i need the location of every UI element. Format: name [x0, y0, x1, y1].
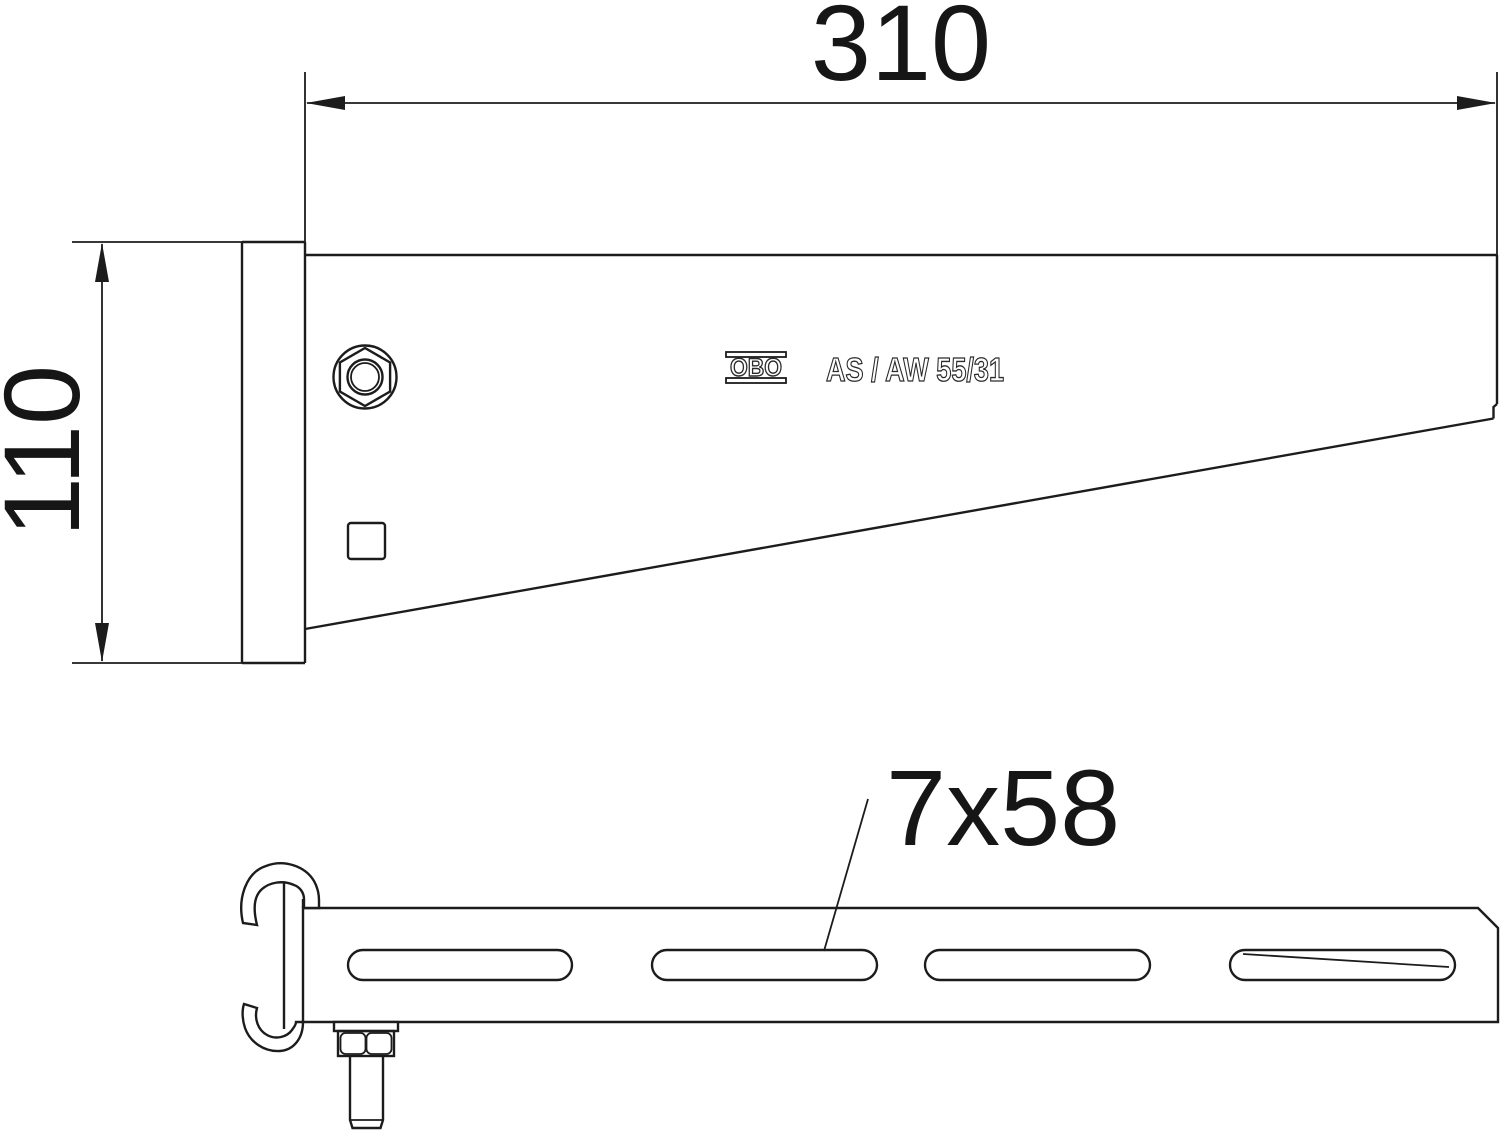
width-dim-label: 310	[811, 0, 991, 103]
height-dim-arrow-up-icon	[95, 243, 109, 282]
width-dimension: 310	[305, 0, 1497, 255]
bolt-shank	[350, 1056, 383, 1128]
arm-profile	[305, 255, 1497, 629]
height-dim-arrow-down-icon	[95, 623, 109, 662]
brand-logo: OBO	[726, 352, 786, 383]
hook-bottom-curl	[243, 1004, 303, 1051]
bolt-nut-face-right	[367, 1033, 392, 1054]
brand-logo-text: OBO	[730, 354, 782, 382]
bolt-washer	[334, 1022, 398, 1031]
square-hole	[348, 523, 385, 559]
height-dimension: 110	[0, 242, 305, 663]
slot-size-label: 7x58	[886, 747, 1120, 868]
width-dim-arrow-left-icon	[306, 96, 345, 110]
height-dim-label: 110	[0, 365, 102, 537]
product-marking-label: AS / AW 55/31	[826, 351, 1004, 388]
bolt-hole-outer-circle	[348, 360, 383, 395]
hex-bolt-head	[334, 346, 397, 409]
width-dim-arrow-right-icon	[1457, 96, 1496, 110]
arm-tip-step	[1494, 404, 1498, 419]
wall-plate	[242, 242, 305, 663]
bottom-view: 7x58	[241, 747, 1498, 1128]
arm-sloped-bottom-edge	[305, 419, 1494, 630]
rail-bar-outline	[303, 908, 1498, 1022]
bracket-drawing-canvas: 310 110	[0, 0, 1500, 1132]
side-view: 310 110	[0, 0, 1497, 663]
bolt-hole-inner-circle	[351, 363, 379, 391]
bolt-flange-circle	[334, 346, 397, 409]
mounting-bolt	[334, 1022, 398, 1128]
bolt-nut-face-left	[341, 1033, 366, 1054]
technical-drawing-page: 310 110	[0, 0, 1500, 1132]
